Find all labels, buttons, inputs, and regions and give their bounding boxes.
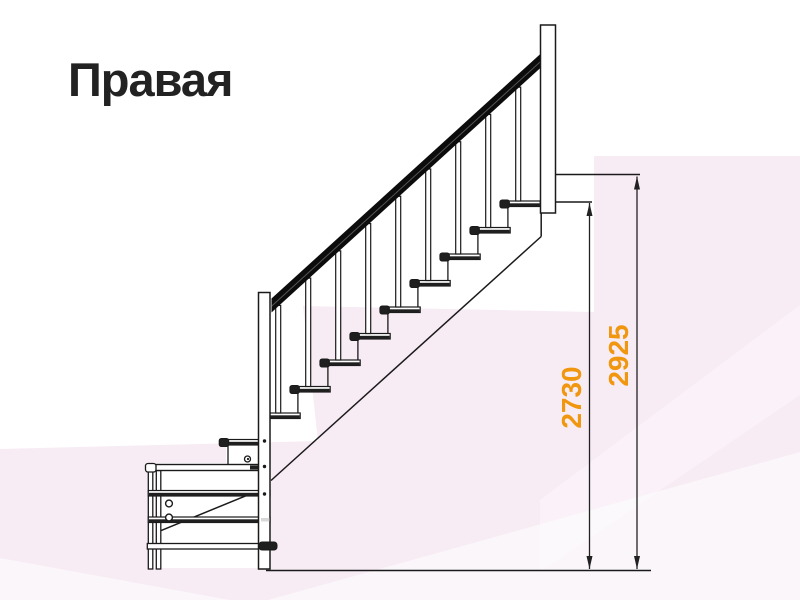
tread-nose (320, 359, 330, 367)
screw-dot (263, 492, 266, 495)
drawing-canvas: Правая 27302925 (0, 0, 800, 600)
screw-head-dot (247, 458, 249, 460)
tread-nose (410, 280, 420, 288)
newel-post-top (541, 25, 556, 213)
tread-nose (500, 200, 510, 208)
dimension-label: 2925 (603, 324, 634, 386)
staircase-diagram: 27302925 (0, 0, 800, 600)
baluster (396, 196, 401, 307)
screw-dot (263, 439, 266, 442)
handrail (272, 53, 543, 313)
platform-top-dark-segment (250, 466, 258, 470)
tread-nose (440, 253, 450, 261)
handrail-band (272, 53, 543, 313)
baluster (306, 278, 311, 386)
baluster (486, 114, 491, 227)
bottom-rail-cap (259, 542, 277, 550)
tread-nose (470, 227, 480, 235)
bolt-hole (166, 500, 173, 507)
baluster (426, 169, 431, 281)
white-fill (226, 443, 262, 466)
platform-top-nose (146, 464, 157, 473)
handrail-sheen (272, 60, 543, 306)
tread-nose (380, 306, 390, 314)
dimension-arrow-up (587, 203, 593, 216)
tread-nose (290, 386, 300, 394)
entry-step-nose (219, 439, 229, 447)
dimension-label: 2730 (556, 366, 587, 428)
platform-rail-face (149, 493, 270, 496)
platform-top-board (147, 465, 260, 471)
screw-dot (263, 465, 266, 468)
baluster (456, 142, 461, 254)
baluster (336, 251, 341, 360)
platform-bottom-rail (147, 544, 262, 550)
bolt-hole (166, 514, 173, 521)
baluster (276, 305, 281, 413)
rail-light-patch (261, 518, 270, 522)
baluster (516, 87, 521, 201)
newel-post-bottom (259, 293, 271, 570)
tread-nose (350, 333, 360, 341)
baluster (366, 224, 371, 334)
